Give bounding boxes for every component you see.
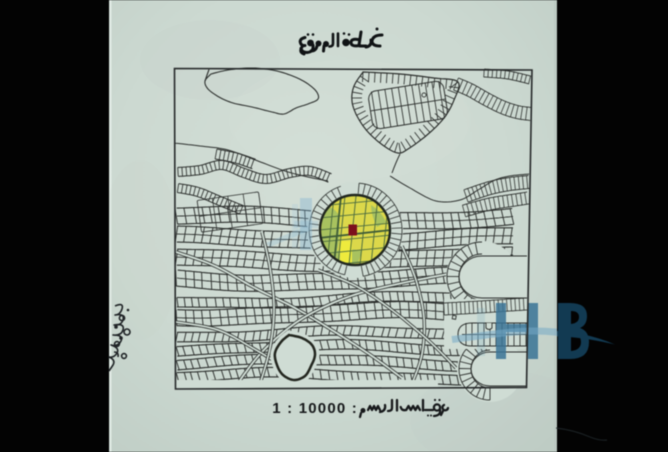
svg-text:1 : 10000 :: 1 : 10000 :	[272, 400, 358, 417]
